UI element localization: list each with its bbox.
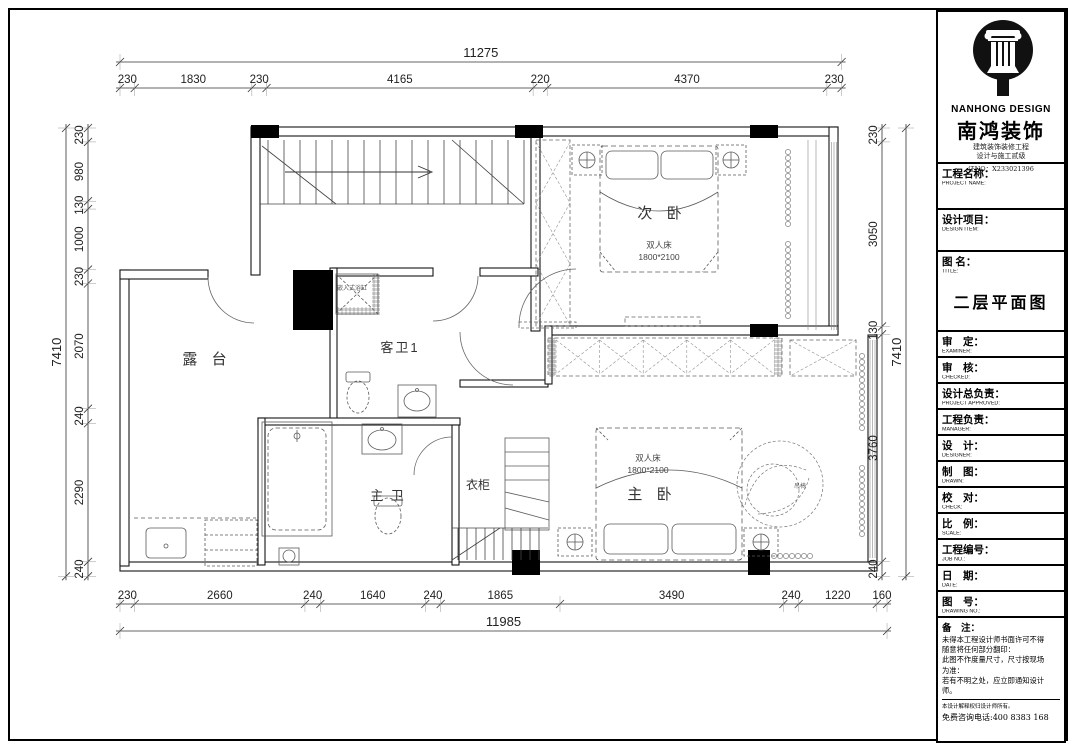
note-line: 师。: [942, 686, 1060, 696]
dim-label: 230: [74, 267, 86, 286]
dim-label: 230: [250, 74, 269, 86]
bed1-size-label: 1800*2100: [627, 465, 668, 475]
terrace-furniture: [134, 518, 257, 566]
field-job-no: 工程编号： JOB NO.:: [938, 540, 1064, 566]
plan-decor: [260, 140, 865, 560]
field-project-approved: 设计总负责： PROJECT APPROVED:: [938, 384, 1064, 410]
dim-label: 2660: [207, 590, 233, 602]
field-en-label: JOB NO.:: [942, 557, 1048, 562]
field-cn-label: 设 计：: [942, 438, 1060, 453]
dim-label: 240: [303, 590, 322, 602]
field-check: 校 对： CHECK:: [938, 488, 1064, 514]
field-cn-label: 比 例：: [942, 516, 1060, 531]
stair-arrow: [285, 166, 432, 178]
field-en-label: PROJECT APPROVED:: [942, 401, 1048, 406]
dim-label: 7410: [49, 338, 64, 367]
dim-label: 230: [825, 74, 844, 86]
field-en-label: DESIGN ITEM:: [942, 227, 1048, 232]
dim-label: 220: [531, 74, 550, 86]
dim-label: 1640: [360, 590, 386, 602]
dim-label: 230: [74, 125, 86, 144]
note-line: 若有不明之处，应立即通知设计: [942, 676, 1060, 686]
field-en-label: SCALE:: [942, 531, 1048, 536]
field-cn-label: 日 期：: [942, 568, 1060, 583]
field-scale: 比 例： SCALE:: [938, 514, 1064, 540]
field-en-label: EXAMINER:: [942, 349, 1048, 354]
field-cn-label: 设计总负责：: [942, 386, 1060, 401]
field-en-label: DRAWING NO.:: [942, 609, 1048, 614]
field-cn-label: 审 定：: [942, 334, 1060, 349]
floor-plan: 次 卧 露 台 客卫1 主 卫 衣柜 主 卧 双人床 1800*2100 双人床…: [0, 0, 936, 753]
field-drawing-no: 图 号： DRAWING NO.:: [938, 592, 1064, 618]
dim-label: 240: [74, 559, 86, 578]
note-line: 为准：: [942, 666, 1060, 676]
dim-label: 240: [781, 590, 800, 602]
chair-label: 吊椅: [794, 482, 806, 490]
dim-label: 130: [74, 196, 86, 215]
dim-label: 4370: [674, 74, 700, 86]
dim-label: 240: [423, 590, 442, 602]
wardrobe-unit: [505, 438, 549, 530]
bed1-type-label: 双人床: [635, 453, 661, 463]
field-cn-label: 制 图：: [942, 464, 1060, 479]
field-en-label: TITLE:: [942, 269, 1048, 274]
field-drawn: 制 图： DRAWN:: [938, 462, 1064, 488]
brand-name-cn: 南鸿装饰: [942, 115, 1060, 144]
dim-label: 240: [868, 559, 880, 578]
note-line: 随意将任何部分翻印：: [942, 645, 1060, 655]
field-cn-label: 图 号：: [942, 594, 1060, 609]
hotline-phone: 免费咨询电话:400 8383 168: [942, 712, 1060, 723]
closet-end-hatch: [548, 338, 556, 376]
room-label-wardrobe: 衣柜: [466, 477, 490, 492]
dim-label: 240: [74, 406, 86, 425]
dim-label: 2070: [74, 333, 86, 359]
room-label-guest-bath: 客卫1: [380, 340, 419, 355]
drawing-sheet: 次 卧 露 台 客卫1 主 卫 衣柜 主 卧 双人床 1800*2100 双人床…: [0, 0, 1080, 753]
field-en-label: DRAWN:: [942, 479, 1048, 484]
dim-label: 160: [872, 590, 891, 602]
field-en-label: CHECK:: [942, 505, 1048, 510]
field-cn-label: 设计项目：: [942, 212, 1060, 227]
field-en-label: DESIGNER:: [942, 453, 1048, 458]
dim-label: 3760: [868, 435, 880, 461]
field-manager: 工程负责： MANAGER:: [938, 410, 1064, 436]
walls: [120, 127, 877, 571]
logo-section: NANHONG DESIGN 南鸿装饰 建筑装饰装修工程 设计与施工贰级 证NO…: [938, 12, 1064, 164]
closet-end-hatch: [774, 338, 782, 376]
room-label-terrace: 露 台: [182, 351, 231, 368]
cert-line-2: 设计与施工贰级: [942, 153, 1060, 162]
room-label-bedroom2: 次 卧: [637, 205, 686, 222]
note-line: 未得本工程设计师书面许可不得: [942, 635, 1060, 645]
room-label-master-bath: 主 卫: [370, 488, 406, 503]
field-designer: 设 计： DESIGNER:: [938, 436, 1064, 462]
dim-label: 980: [74, 162, 86, 181]
cert-line-1: 建筑装饰装修工程: [942, 144, 1060, 153]
field-project-name: 工程名称： PROJECT NAME:: [938, 164, 1064, 210]
hanging-chair: [737, 441, 823, 527]
shower-wall-hatch: [372, 274, 380, 307]
room-label-master-bedroom: 主 卧: [627, 486, 676, 503]
field-examiner: 审 定： EXAMINER:: [938, 332, 1064, 358]
dim-label: 1000: [74, 227, 86, 253]
dim-label: 230: [118, 590, 137, 602]
dim-label: 11985: [486, 614, 521, 629]
dim-label: 230: [118, 74, 137, 86]
field-en-label: DATE:: [942, 583, 1048, 588]
field-cn-label: 校 对：: [942, 490, 1060, 505]
field-date: 日 期： DATE:: [938, 566, 1064, 592]
dim-label: 230: [868, 125, 880, 144]
field-cn-label: 审 核：: [942, 360, 1060, 375]
dim-label: 4165: [387, 74, 413, 86]
dim-label: 3490: [659, 590, 685, 602]
dim-label: 7410: [889, 338, 904, 367]
note-line: 此图不作度量尺寸，尺寸按现场: [942, 655, 1060, 665]
bed2-size-label: 1800*2100: [638, 252, 679, 262]
dim-label: 1830: [180, 74, 206, 86]
dim-label: 1220: [825, 590, 851, 602]
field-checked: 审 核： CHECKED:: [938, 358, 1064, 384]
dim-label: 3050: [868, 221, 880, 247]
field-cn-label: 工程名称：: [942, 166, 1060, 181]
fine-print: 本设计解释权归设计师所有。: [942, 699, 1060, 710]
field-cn-label: 工程负责：: [942, 412, 1060, 427]
brand-name-en: NANHONG DESIGN: [942, 104, 1060, 115]
nanhong-logo-icon: [942, 16, 1064, 98]
shower-wall-hatch: [336, 307, 380, 315]
field-cn-label: 工程编号：: [942, 542, 1060, 557]
drawing-title: 二层平面图: [942, 289, 1060, 313]
field-design-item: 设计项目： DESIGN ITEM:: [938, 210, 1064, 252]
notes-section: 备 注： 未得本工程设计师书面许可不得 随意将任何部分翻印： 此图不作度量尺寸，…: [938, 618, 1064, 741]
dim-label: 11275: [463, 45, 498, 60]
title-block: NANHONG DESIGN 南鸿装饰 建筑装饰装修工程 设计与施工贰级 证NO…: [936, 10, 1066, 743]
notes-label: 备 注：: [942, 620, 1060, 634]
field-cn-label: 图 名：: [942, 254, 1060, 269]
dim-label: 2290: [74, 480, 86, 506]
dim-label: 130: [868, 321, 880, 340]
window-glazing: [808, 140, 875, 558]
tub-label: 嵌入式浴缸: [337, 284, 367, 292]
field-en-label: CHECKED:: [942, 375, 1048, 380]
field-en-label: MANAGER:: [942, 427, 1048, 432]
field-en-label: PROJECT NAME:: [942, 181, 1048, 186]
field-drawing-title: 图 名： TITLE: 二层平面图: [938, 252, 1064, 332]
bed2-type-label: 双人床: [646, 240, 672, 250]
dim-label: 1865: [488, 590, 514, 602]
